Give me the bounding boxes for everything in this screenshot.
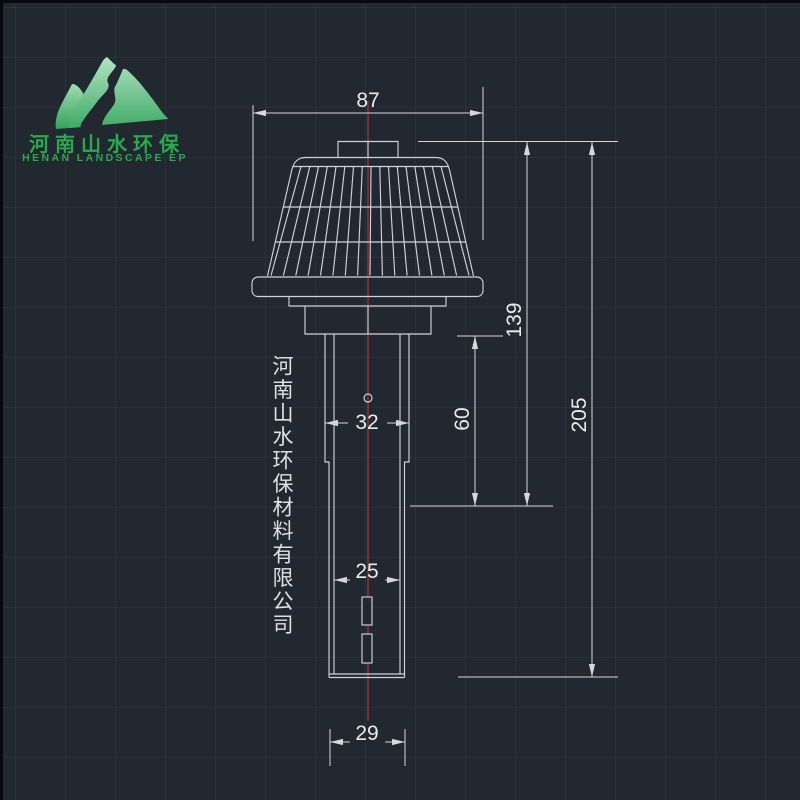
dim-stem-od: 32 xyxy=(325,411,409,434)
dim-text-87: 87 xyxy=(356,89,379,112)
dim-text-25: 25 xyxy=(355,560,378,583)
dim-text-205: 205 xyxy=(568,397,591,432)
dim-bore: 25 xyxy=(334,560,400,583)
stem-slot-lower xyxy=(362,634,372,663)
dim-tip: 29 xyxy=(330,722,405,766)
dim-text-139: 139 xyxy=(503,302,526,337)
dim-text-32: 32 xyxy=(355,411,378,434)
dim-text-60: 60 xyxy=(451,407,474,430)
dim-lower-section: 60 xyxy=(451,336,478,506)
filter-nozzle-drawing: 87 139 205 60 xyxy=(0,0,800,800)
stem-slot-upper xyxy=(362,597,372,625)
cap-slit-ribs xyxy=(271,167,469,276)
dim-cap-to-step: 139 xyxy=(503,142,530,506)
stem xyxy=(325,334,409,678)
cap-knob xyxy=(338,142,398,158)
cad-canvas[interactable]: 河南山水环保 HENAN LANDSCAPE EP 河南山水环保材料有限公司 xyxy=(0,0,800,800)
dim-overall-height: 205 xyxy=(568,142,595,677)
dim-text-29: 29 xyxy=(355,722,378,745)
